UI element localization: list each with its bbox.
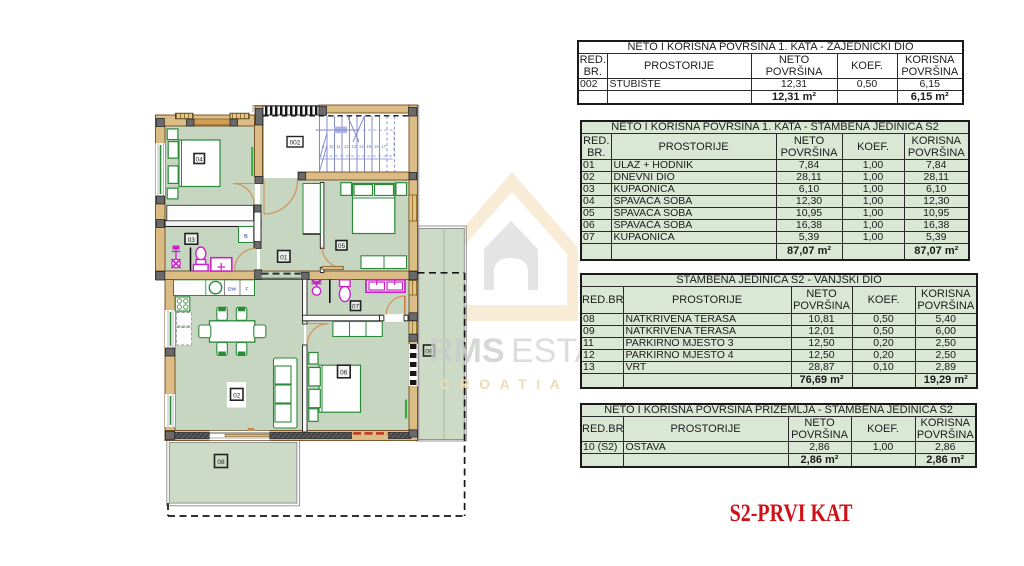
svg-text:11: 11 [337,144,342,149]
svg-text:002: 002 [290,140,301,147]
svg-text:16: 16 [374,144,379,149]
svg-text:02: 02 [233,393,241,400]
svg-text:06: 06 [340,370,348,377]
svg-text:04: 04 [196,156,204,163]
svg-text:07: 07 [352,304,360,311]
svg-text:01: 01 [280,255,288,262]
svg-text:F: F [246,287,249,293]
svg-text:B: B [244,234,248,240]
svg-text:RMS: RMS [429,332,505,370]
svg-text:17: 17 [382,144,387,149]
svg-text:12: 12 [344,144,349,149]
svg-text:08: 08 [217,459,225,466]
svg-text:14: 14 [359,144,364,149]
svg-text:05: 05 [338,243,346,250]
svg-text:03: 03 [188,237,196,244]
svg-text:DW: DW [228,287,236,293]
svg-text:15: 15 [367,144,372,149]
svg-text:10: 10 [329,144,334,149]
svg-text:13: 13 [352,144,357,149]
svg-text:CROATIA: CROATIA [440,376,569,392]
